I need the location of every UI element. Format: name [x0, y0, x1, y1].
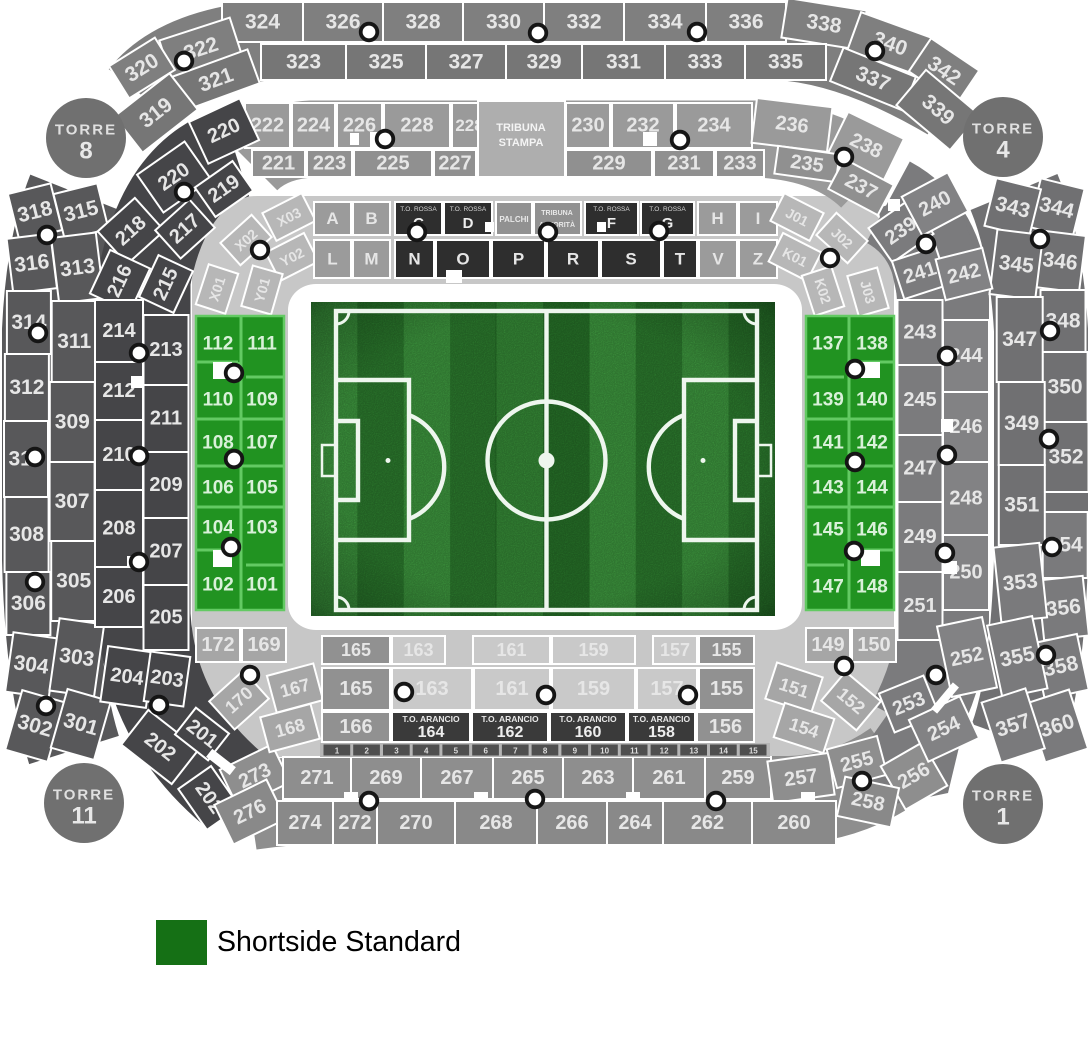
svg-text:236: 236 — [774, 112, 810, 138]
svg-text:Shortside Standard: Shortside Standard — [217, 926, 461, 958]
svg-text:265: 265 — [511, 767, 544, 789]
svg-text:203: 203 — [149, 666, 185, 692]
svg-text:251: 251 — [903, 595, 936, 617]
svg-text:TORRE: TORRE — [972, 121, 1034, 138]
svg-text:270: 270 — [399, 812, 432, 834]
svg-text:T.O. ARANCIO: T.O. ARANCIO — [633, 714, 691, 724]
svg-text:148: 148 — [856, 577, 888, 598]
svg-text:311: 311 — [57, 330, 91, 353]
svg-text:101: 101 — [246, 575, 278, 596]
svg-text:233: 233 — [723, 153, 756, 175]
svg-text:262: 262 — [691, 812, 724, 834]
svg-text:313: 313 — [59, 254, 97, 281]
svg-text:312: 312 — [9, 376, 44, 399]
svg-text:112: 112 — [203, 334, 234, 355]
svg-text:345: 345 — [998, 251, 1036, 278]
svg-text:M: M — [364, 250, 378, 269]
svg-text:165: 165 — [339, 678, 372, 700]
svg-text:12: 12 — [660, 747, 669, 756]
svg-text:266: 266 — [555, 812, 588, 834]
svg-text:307: 307 — [55, 490, 90, 513]
svg-text:159: 159 — [578, 640, 608, 660]
svg-text:155: 155 — [710, 678, 743, 700]
svg-text:352: 352 — [1048, 446, 1083, 469]
svg-text:145: 145 — [812, 520, 844, 541]
svg-text:172: 172 — [201, 634, 234, 656]
svg-text:F: F — [607, 215, 616, 232]
svg-text:TORRE: TORRE — [972, 788, 1034, 805]
svg-text:211: 211 — [150, 408, 182, 430]
svg-text:164: 164 — [418, 724, 445, 741]
svg-text:221: 221 — [262, 153, 295, 175]
svg-text:111: 111 — [247, 334, 277, 355]
svg-text:356: 356 — [1045, 595, 1082, 622]
svg-text:142: 142 — [856, 433, 888, 454]
svg-text:8: 8 — [543, 747, 548, 756]
svg-text:4: 4 — [996, 137, 1010, 164]
svg-text:147: 147 — [812, 577, 844, 598]
svg-text:263: 263 — [581, 767, 614, 789]
svg-text:206: 206 — [102, 586, 135, 608]
svg-text:229: 229 — [592, 153, 625, 175]
svg-text:165: 165 — [341, 640, 371, 660]
svg-text:110: 110 — [203, 390, 234, 411]
svg-text:2: 2 — [364, 747, 369, 756]
svg-text:B: B — [365, 209, 377, 228]
svg-text:349: 349 — [1004, 412, 1039, 435]
svg-text:1: 1 — [996, 804, 1009, 831]
svg-text:329: 329 — [526, 51, 561, 74]
svg-text:105: 105 — [246, 478, 278, 499]
svg-text:T.O. ROSSA: T.O. ROSSA — [400, 206, 437, 213]
svg-text:S: S — [625, 250, 636, 269]
svg-text:169: 169 — [247, 634, 280, 656]
svg-text:336: 336 — [728, 11, 763, 34]
svg-text:155: 155 — [711, 640, 741, 660]
svg-text:259: 259 — [721, 767, 754, 789]
svg-text:T.O. ARANCIO: T.O. ARANCIO — [559, 714, 617, 724]
svg-text:328: 328 — [405, 11, 440, 34]
svg-text:6: 6 — [483, 747, 488, 756]
svg-text:102: 102 — [202, 575, 234, 596]
svg-text:T.O. ARANCIO: T.O. ARANCIO — [402, 714, 460, 724]
svg-text:STAMPA: STAMPA — [499, 137, 544, 149]
svg-text:214: 214 — [102, 320, 136, 342]
svg-text:212: 212 — [102, 380, 135, 402]
svg-text:267: 267 — [440, 767, 473, 789]
svg-text:334: 334 — [647, 11, 682, 34]
svg-text:TORRE: TORRE — [53, 787, 115, 804]
svg-text:13: 13 — [689, 747, 698, 756]
svg-text:T.O. ROSSA: T.O. ROSSA — [450, 206, 487, 213]
svg-text:351: 351 — [1004, 494, 1039, 517]
svg-text:224: 224 — [297, 115, 331, 137]
svg-text:268: 268 — [479, 812, 512, 834]
svg-text:149: 149 — [811, 634, 844, 656]
svg-text:O: O — [456, 250, 469, 269]
svg-text:243: 243 — [903, 322, 936, 344]
svg-text:353: 353 — [1002, 569, 1039, 596]
svg-text:156: 156 — [709, 716, 742, 738]
svg-text:144: 144 — [856, 478, 888, 499]
svg-text:T.O. ROSSA: T.O. ROSSA — [649, 206, 686, 213]
svg-text:8: 8 — [79, 138, 92, 165]
svg-text:TORRE: TORRE — [55, 122, 117, 139]
svg-text:103: 103 — [246, 518, 278, 539]
svg-text:4: 4 — [424, 747, 429, 756]
svg-text:249: 249 — [903, 526, 936, 548]
svg-text:269: 269 — [369, 767, 402, 789]
svg-text:261: 261 — [652, 767, 685, 789]
svg-text:207: 207 — [149, 541, 182, 563]
svg-text:106: 106 — [202, 478, 234, 499]
svg-text:326: 326 — [325, 11, 360, 34]
svg-text:Z: Z — [753, 250, 763, 269]
svg-text:107: 107 — [246, 433, 278, 454]
svg-text:143: 143 — [812, 478, 844, 499]
svg-text:324: 324 — [245, 11, 280, 34]
svg-text:332: 332 — [566, 11, 601, 34]
svg-text:272: 272 — [338, 812, 371, 834]
svg-text:T.O. ARANCIO: T.O. ARANCIO — [481, 714, 539, 724]
svg-text:335: 335 — [768, 51, 803, 74]
svg-text:327: 327 — [448, 51, 483, 74]
svg-text:323: 323 — [286, 51, 321, 74]
svg-text:274: 274 — [288, 812, 322, 834]
svg-text:209: 209 — [149, 474, 182, 496]
svg-text:350: 350 — [1048, 376, 1083, 399]
svg-text:309: 309 — [55, 411, 90, 434]
svg-text:141: 141 — [812, 433, 844, 454]
svg-text:264: 264 — [618, 812, 652, 834]
svg-text:346: 346 — [1041, 248, 1079, 275]
svg-text:225: 225 — [376, 153, 409, 175]
svg-text:305: 305 — [56, 570, 91, 593]
svg-text:208: 208 — [102, 518, 135, 540]
svg-text:15: 15 — [749, 747, 758, 756]
svg-text:347: 347 — [1002, 328, 1037, 351]
svg-text:205: 205 — [149, 607, 182, 629]
svg-text:T: T — [675, 250, 686, 269]
svg-text:247: 247 — [903, 458, 936, 480]
svg-text:150: 150 — [857, 634, 890, 656]
svg-text:161: 161 — [496, 640, 526, 660]
svg-text:11: 11 — [630, 747, 639, 756]
svg-text:303: 303 — [58, 644, 96, 672]
svg-text:257: 257 — [783, 765, 819, 791]
svg-text:P: P — [513, 250, 524, 269]
svg-text:10: 10 — [600, 747, 609, 756]
svg-text:104: 104 — [202, 518, 234, 539]
svg-text:223: 223 — [313, 153, 346, 175]
svg-text:316: 316 — [13, 250, 51, 277]
svg-text:11: 11 — [71, 803, 96, 830]
svg-text:V: V — [712, 250, 724, 269]
svg-text:14: 14 — [719, 747, 728, 756]
svg-text:TRIBUNA: TRIBUNA — [541, 210, 573, 217]
svg-text:9: 9 — [573, 747, 578, 756]
svg-text:234: 234 — [697, 115, 731, 137]
svg-text:TRIBUNA: TRIBUNA — [496, 122, 546, 134]
svg-text:333: 333 — [687, 51, 722, 74]
svg-text:163: 163 — [403, 640, 433, 660]
svg-text:330: 330 — [486, 11, 521, 34]
svg-text:T.O. ROSSA: T.O. ROSSA — [593, 206, 630, 213]
svg-text:109: 109 — [246, 390, 278, 411]
svg-text:235: 235 — [789, 151, 825, 177]
svg-text:304: 304 — [12, 651, 50, 679]
svg-text:306: 306 — [11, 592, 46, 615]
svg-text:D: D — [463, 215, 474, 232]
svg-text:248: 248 — [949, 488, 982, 510]
svg-text:271: 271 — [300, 767, 333, 789]
svg-text:166: 166 — [339, 716, 372, 738]
svg-text:325: 325 — [368, 51, 403, 74]
svg-text:140: 140 — [856, 390, 888, 411]
svg-text:228: 228 — [400, 115, 433, 137]
svg-text:138: 138 — [856, 334, 888, 355]
svg-text:213: 213 — [149, 339, 182, 361]
svg-text:5: 5 — [454, 747, 459, 756]
svg-text:I: I — [756, 209, 761, 228]
svg-text:160: 160 — [575, 724, 602, 741]
svg-text:162: 162 — [497, 724, 524, 741]
svg-text:246: 246 — [949, 416, 982, 438]
svg-text:146: 146 — [856, 520, 888, 541]
svg-text:A: A — [326, 209, 338, 228]
svg-text:L: L — [327, 250, 337, 269]
svg-text:PALCHI: PALCHI — [499, 215, 528, 224]
svg-text:R: R — [567, 250, 579, 269]
svg-text:H: H — [711, 209, 723, 228]
svg-text:1: 1 — [335, 747, 340, 756]
svg-text:245: 245 — [903, 389, 936, 411]
svg-text:331: 331 — [606, 51, 641, 74]
svg-text:230: 230 — [571, 115, 604, 137]
svg-text:161: 161 — [495, 678, 528, 700]
svg-text:3: 3 — [394, 747, 399, 756]
svg-text:7: 7 — [513, 747, 518, 756]
svg-text:158: 158 — [648, 724, 675, 741]
svg-text:260: 260 — [777, 812, 810, 834]
svg-text:159: 159 — [577, 678, 610, 700]
svg-text:157: 157 — [660, 640, 690, 660]
svg-text:308: 308 — [9, 523, 44, 546]
svg-text:227: 227 — [438, 153, 471, 175]
svg-text:231: 231 — [667, 153, 700, 175]
svg-text:163: 163 — [415, 678, 448, 700]
svg-text:139: 139 — [812, 390, 844, 411]
svg-text:N: N — [408, 250, 420, 269]
svg-text:137: 137 — [812, 334, 844, 355]
